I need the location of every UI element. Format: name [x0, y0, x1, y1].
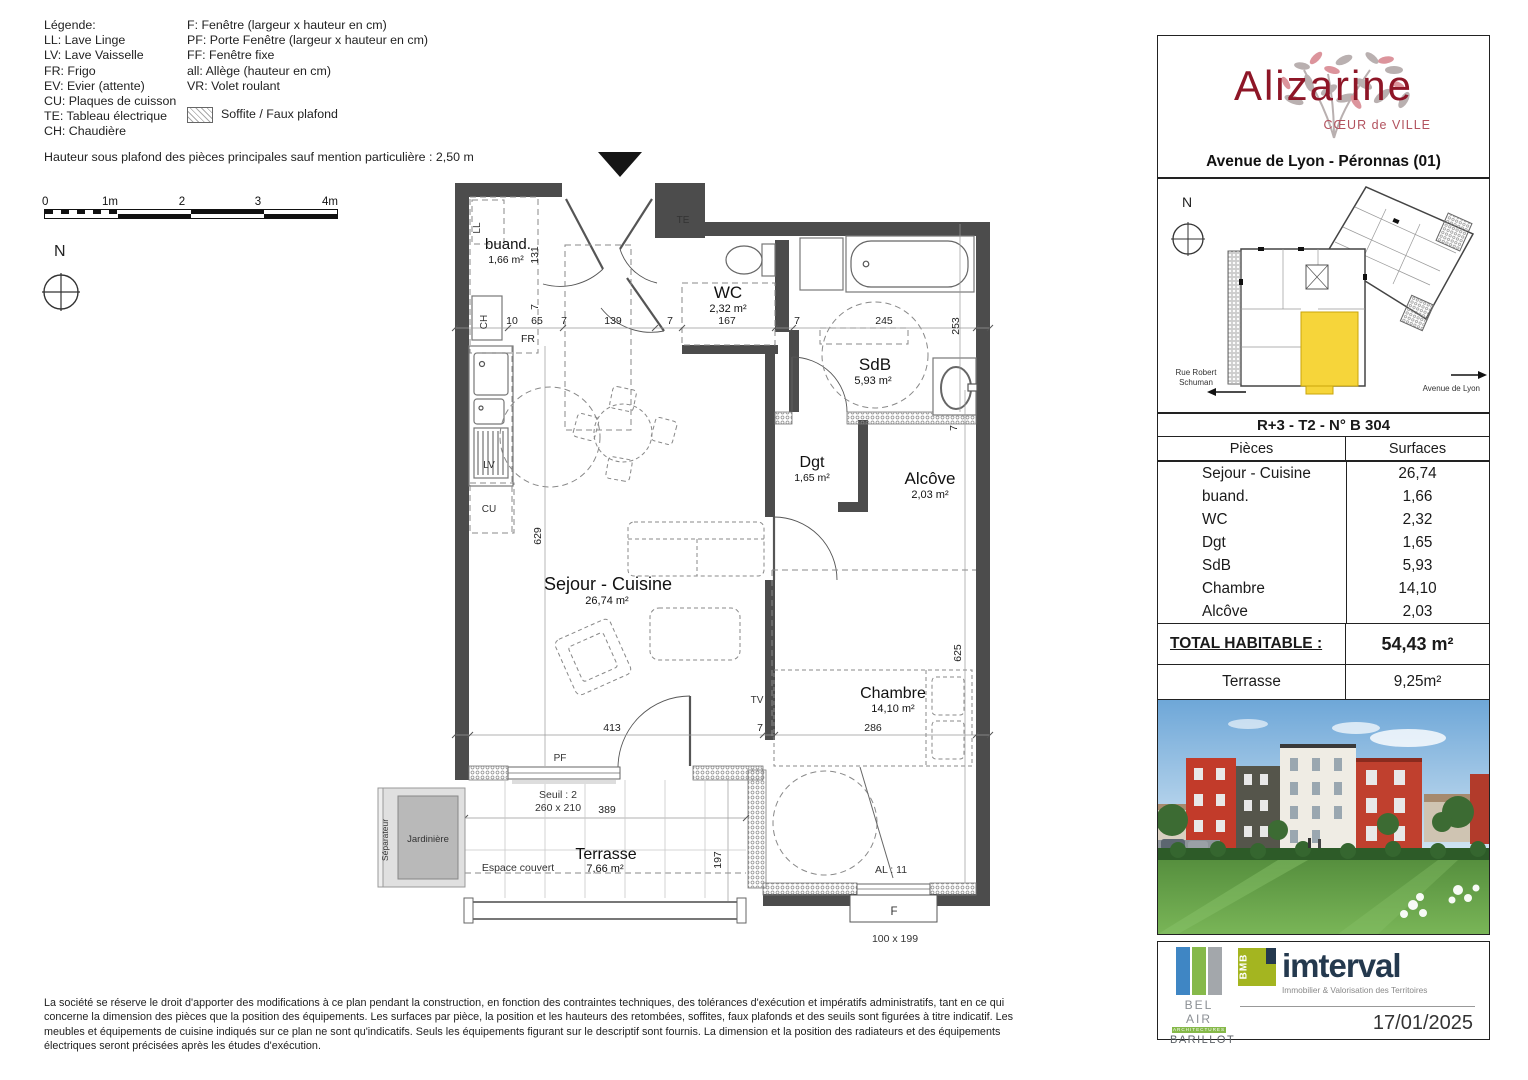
legend-item: all: Allège (hauteur en cm)	[187, 64, 428, 79]
table-header: Pièces Surfaces	[1157, 436, 1490, 462]
svg-text:2,32 m²: 2,32 m²	[709, 303, 747, 315]
soffite-hatch-swatch	[187, 107, 213, 123]
col-pieces: Pièces	[1158, 437, 1346, 460]
bath-closet	[800, 238, 843, 290]
legend-item: CH: Chaudière	[44, 124, 176, 139]
scale-bar-graphic	[44, 209, 338, 219]
svg-text:Séparateur: Séparateur	[380, 819, 390, 861]
street-right: Avenue de Lyon	[1423, 384, 1480, 393]
svg-text:10: 10	[506, 315, 518, 327]
info-panel: Alizarine CŒUR de VILLE Avenue de Lyon -…	[1157, 35, 1490, 1040]
belair-name: BEL AIR	[1170, 998, 1228, 1026]
legend-item: PF: Porte Fenêtre (largeur x hauteur en …	[187, 33, 428, 48]
sofa	[628, 522, 764, 576]
surface-table: Sejour - Cuisine26,74 buand.1,66 WC2,32 …	[1157, 461, 1490, 624]
table-row: Sejour - Cuisine26,74	[1158, 462, 1489, 485]
row-piece: Dgt	[1158, 534, 1346, 552]
legend-item: LV: Lave Vaisselle	[44, 48, 176, 63]
row-surface: 1,66	[1346, 488, 1489, 506]
row-surface: 14,10	[1346, 580, 1489, 598]
belair-bars-icon	[1170, 947, 1228, 995]
svg-text:167: 167	[718, 315, 736, 327]
scale-tick-label: 4m	[322, 196, 338, 208]
total-label: TOTAL HABITABLE :	[1158, 624, 1346, 664]
svg-text:1,65 m²: 1,65 m²	[794, 472, 830, 484]
svg-text:26,74 m²: 26,74 m²	[585, 595, 629, 607]
scale-bar: 0 1m 2 3 4m	[44, 196, 340, 219]
table-row: WC2,32	[1158, 508, 1489, 531]
highlighted-unit	[1301, 312, 1358, 394]
table-row: Chambre14,10	[1158, 577, 1489, 600]
row-piece: buand.	[1158, 488, 1346, 506]
toilet-tank	[762, 244, 775, 276]
arrow-left-icon	[1207, 388, 1216, 396]
site-plan-drawing: N	[1158, 179, 1489, 412]
svg-text:65: 65	[531, 315, 543, 327]
street-left-line1: Rue Robert	[1176, 368, 1218, 377]
svg-text:Jardinière: Jardinière	[407, 834, 449, 845]
kitchen-sink	[474, 353, 508, 395]
svg-text:629: 629	[532, 527, 544, 545]
legend-item: FF: Fenêtre fixe	[187, 48, 428, 63]
table-row: buand.1,66	[1158, 485, 1489, 508]
balcony-strip	[1228, 251, 1241, 384]
svg-text:2,03 m²: 2,03 m²	[911, 489, 949, 501]
terrasse-row: Terrasse 9,25m²	[1157, 664, 1490, 700]
electric-panel-label: TE	[677, 215, 690, 226]
svg-text:Seuil : 2: Seuil : 2	[539, 789, 577, 801]
f-window	[857, 884, 930, 895]
scale-tick-label: 1m	[102, 196, 118, 208]
row-piece: Sejour - Cuisine	[1158, 465, 1346, 483]
bmb-label: BMB	[1238, 954, 1249, 980]
svg-text:1,66 m²: 1,66 m²	[488, 254, 524, 266]
project-logo-title: Alizarine	[1158, 62, 1489, 110]
room-chambre: Chambre	[860, 685, 926, 702]
row-piece: Chambre	[1158, 580, 1346, 598]
arrow-right-icon	[1478, 371, 1487, 379]
pf-label: PF	[554, 753, 567, 764]
project-logo-box: Alizarine CŒUR de VILLE Avenue de Lyon -…	[1157, 35, 1490, 178]
room-sejour: Sejour - Cuisine	[544, 574, 672, 594]
imterval-name: imterval	[1282, 948, 1427, 984]
scale-tick-label: 0	[42, 196, 48, 208]
table-row: Alcôve2,03	[1158, 600, 1489, 623]
svg-text:253: 253	[950, 317, 962, 335]
building-render-photo	[1157, 699, 1490, 935]
cooktop-label: CU	[482, 504, 496, 515]
soffite-legend-row: Soffite / Faux plafond	[187, 107, 428, 123]
svg-text:625: 625	[952, 644, 964, 662]
legend-title: Légende:	[44, 18, 176, 33]
legend-item: CU: Plaques de cuisson	[44, 94, 176, 109]
toilet-bowl	[726, 246, 762, 274]
belair-barillot: BARILLOT	[1170, 1034, 1228, 1046]
fridge-label: FR	[521, 333, 535, 345]
legend-item: VR: Volet roulant	[187, 79, 428, 94]
legend-item: LL: Lave Linge	[44, 33, 176, 48]
scale-bar-ticks: 0 1m 2 3 4m	[44, 196, 340, 209]
signature-box: BEL AIR ARCHITECTURES BARILLOT BMB imter…	[1157, 941, 1490, 1040]
project-logo-subtitle: CŒUR de VILLE	[1324, 118, 1431, 132]
row-surface: 2,32	[1346, 511, 1489, 529]
imterval-subtitle: Immobilier & Valorisation des Territoire…	[1282, 985, 1427, 995]
street-left-line2: Schuman	[1179, 378, 1213, 387]
site-north-label: N	[1182, 194, 1192, 210]
armchair	[553, 617, 632, 696]
svg-text:7,66 m²: 7,66 m²	[586, 863, 624, 875]
svg-text:260 x 210: 260 x 210	[535, 802, 581, 814]
project-address: Avenue de Lyon - Péronnas (01)	[1158, 153, 1489, 171]
row-piece: SdB	[1158, 557, 1346, 575]
north-label: N	[54, 243, 66, 260]
soffite-label: Soffite / Faux plafond	[221, 107, 338, 122]
room-alcove: Alcôve	[904, 469, 955, 488]
svg-text:7: 7	[757, 722, 763, 734]
terrasse-label: Terrasse	[1158, 665, 1346, 699]
room-wc: WC	[714, 283, 742, 302]
row-surface: 26,74	[1346, 465, 1489, 483]
svg-text:Espace couvert: Espace couvert	[482, 862, 554, 874]
bmb-square-icon: BMB	[1238, 948, 1276, 986]
row-piece: WC	[1158, 511, 1346, 529]
room-buand: buand.	[485, 236, 531, 253]
entrance-arrow-icon	[598, 152, 642, 177]
site-plan-box: N	[1157, 178, 1490, 413]
room-dgt: Dgt	[800, 454, 825, 471]
legend-item: FR: Frigo	[44, 64, 176, 79]
floor-plan-drawing: 10 65 7 139 7 167 7 245 FR 131 7 253 629…	[360, 150, 1000, 960]
scale-tick-label: 3	[255, 196, 261, 208]
legend-item: EV: Evier (attente)	[44, 79, 176, 94]
dimension-ticks	[452, 325, 993, 821]
svg-text:7: 7	[794, 315, 800, 327]
row-surface: 2,03	[1346, 603, 1489, 621]
svg-text:245: 245	[875, 315, 893, 327]
dishwasher-label: LV	[483, 460, 495, 471]
washbasin	[941, 367, 971, 409]
svg-text:197: 197	[712, 851, 724, 869]
room-terrasse: Terrasse	[575, 846, 636, 863]
tv-label: TV	[751, 695, 764, 706]
svg-text:413: 413	[603, 722, 621, 734]
imterval-logo: BMB imterval Immobilier & Valorisation d…	[1238, 948, 1479, 995]
svg-text:AL : 11: AL : 11	[875, 864, 907, 876]
plan-date: 17/01/2025	[1373, 1012, 1473, 1035]
svg-text:7: 7	[667, 315, 673, 327]
terrasse-value: 9,25m²	[1346, 673, 1489, 691]
col-surfaces: Surfaces	[1346, 437, 1489, 460]
dining-table	[594, 404, 652, 462]
row-surface: 1,65	[1346, 534, 1489, 552]
legend-right-column: F: Fenêtre (largeur x hauteur en cm) PF:…	[187, 18, 428, 123]
svg-text:7: 7	[948, 425, 960, 431]
svg-text:5,93 m²: 5,93 m²	[854, 375, 892, 387]
floor-plan-sheet: { "legend": { "title": "Légende:", "left…	[0, 0, 1528, 1080]
legend-left-column: Légende: LL: Lave Linge LV: Lave Vaissel…	[44, 18, 176, 140]
north-compass: N	[40, 240, 88, 318]
boiler-label: CH	[479, 315, 490, 329]
svg-text:14,10 m²: 14,10 m²	[871, 703, 915, 715]
svg-text:7: 7	[561, 315, 567, 327]
coffee-table	[650, 608, 740, 660]
legend-item: F: Fenêtre (largeur x hauteur en cm)	[187, 18, 428, 33]
signature-divider	[1240, 1006, 1475, 1007]
table-divider	[1346, 462, 1347, 623]
disclaimer-text: La société se réserve le droit d'apporte…	[44, 996, 1019, 1053]
room-sdb: SdB	[859, 355, 891, 374]
table-row: SdB5,93	[1158, 554, 1489, 577]
svg-text:286: 286	[864, 722, 882, 734]
row-surface: 5,93	[1346, 557, 1489, 575]
legend-item: TE: Tableau électrique	[44, 109, 176, 124]
scale-tick-label: 2	[179, 196, 185, 208]
total-value: 54,43 m²	[1346, 634, 1489, 655]
unit-title: R+3 - T2 - N° B 304	[1157, 413, 1490, 437]
svg-text:139: 139	[604, 315, 622, 327]
table-row: Dgt1,65	[1158, 531, 1489, 554]
window-f-label: F	[890, 906, 897, 918]
belair-logo: BEL AIR ARCHITECTURES BARILLOT	[1170, 947, 1228, 1046]
total-row: TOTAL HABITABLE : 54,43 m²	[1157, 623, 1490, 665]
svg-text:100 x 199: 100 x 199	[872, 933, 918, 945]
belair-architectures: ARCHITECTURES	[1172, 1027, 1226, 1033]
svg-text:389: 389	[598, 804, 616, 816]
svg-text:7: 7	[529, 304, 541, 310]
washer-label: LL	[472, 222, 483, 234]
row-piece: Alcôve	[1158, 603, 1346, 621]
